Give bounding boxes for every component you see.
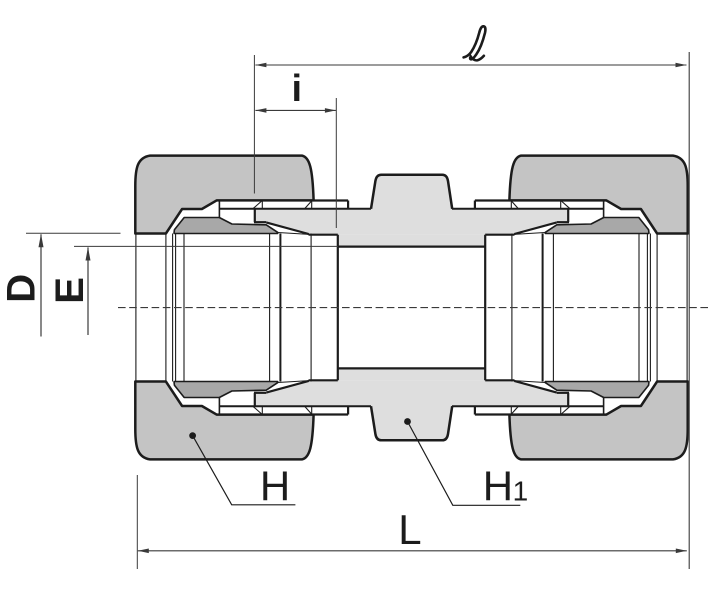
- svg-text:H1: H1: [483, 462, 528, 509]
- svg-text:D: D: [0, 274, 43, 303]
- svg-text:E: E: [48, 277, 92, 304]
- svg-text:i: i: [292, 68, 303, 110]
- svg-text:L: L: [398, 506, 421, 553]
- svg-text:H: H: [260, 462, 290, 509]
